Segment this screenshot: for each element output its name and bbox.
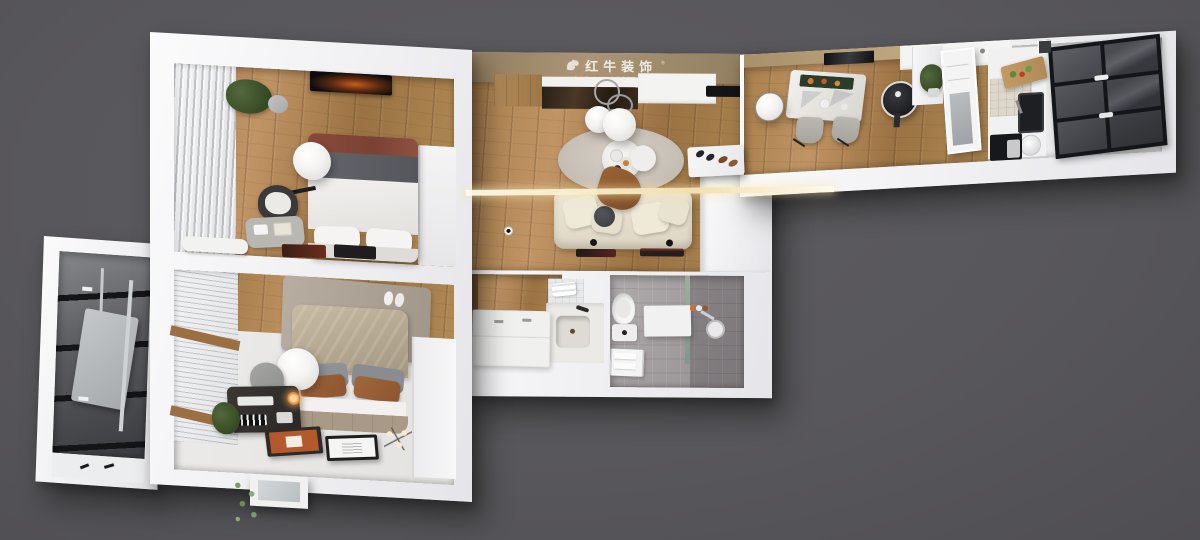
towel-rack — [610, 348, 645, 376]
toilet — [612, 293, 638, 343]
tall-shelf-unit — [940, 47, 981, 155]
outdoor-plant-sprigs — [224, 474, 270, 529]
cabinet-seam — [472, 335, 550, 338]
shoe — [695, 149, 706, 159]
coffee-table-small — [630, 145, 656, 171]
bull-logo-icon — [565, 59, 581, 72]
stock-pot — [1020, 134, 1041, 156]
floor-frame-orange — [265, 426, 324, 457]
entry-shoe-ledge — [687, 145, 744, 178]
center-wing: 红牛装饰 ® HONG NIU DECORATION — [458, 52, 772, 398]
balcony-floor — [52, 453, 145, 483]
left-wing — [150, 32, 472, 502]
book — [273, 222, 292, 236]
bath-partition-shelf — [644, 305, 692, 336]
glass-pane — [1057, 117, 1107, 155]
sofa-knob — [666, 239, 673, 246]
glass-pane — [1104, 38, 1158, 76]
towel — [614, 353, 636, 360]
sputnik-light-fixture — [384, 427, 412, 451]
bedside-mat — [282, 244, 326, 258]
glass-pane — [1109, 110, 1163, 148]
pendant-lamp — [603, 108, 636, 141]
closet-column — [412, 337, 456, 479]
dining-table — [785, 70, 866, 123]
desk-panel — [276, 412, 293, 423]
sink-drain — [570, 329, 575, 334]
white-cabinet — [638, 73, 716, 104]
registered-mark: ® — [661, 60, 665, 66]
faucet — [576, 305, 590, 313]
flush-button — [622, 330, 627, 335]
towel-rolls — [551, 282, 576, 297]
shoe — [727, 158, 739, 168]
shelf-line — [947, 64, 969, 68]
glass-pane — [1107, 74, 1161, 112]
sofa — [554, 189, 692, 250]
food-plate — [620, 157, 632, 169]
laundry-vanity — [546, 303, 604, 363]
toiletry-bottles — [690, 304, 708, 313]
cup — [895, 91, 901, 97]
bedside-mat — [334, 244, 376, 259]
dish — [840, 103, 848, 110]
wood-cabinet — [494, 74, 542, 106]
dish — [818, 98, 830, 110]
shoe — [717, 155, 729, 165]
plant-pot — [268, 95, 288, 114]
glass-pane — [1055, 81, 1105, 119]
counter-deco — [980, 48, 985, 53]
shower-head — [706, 320, 725, 339]
floor-frame-white — [325, 434, 379, 461]
wardrobe — [418, 145, 456, 267]
plant-pot — [928, 88, 939, 98]
floor-mat — [576, 249, 616, 257]
kitchen-counter — [988, 46, 1046, 159]
shelf-marble-panel — [949, 92, 973, 146]
frame-card — [285, 436, 302, 448]
shoe — [705, 152, 716, 162]
frame-print — [342, 442, 363, 454]
floorplan-3d-render: 红牛装饰 ® HONG NIU DECORATION — [0, 0, 1200, 540]
cabinet-handle — [522, 319, 531, 322]
shelf-line — [947, 78, 969, 82]
balcony-clip — [78, 396, 88, 401]
table-runner — [799, 74, 854, 90]
small-device — [1007, 139, 1020, 158]
desk-tray — [237, 396, 274, 406]
table-stem — [894, 113, 901, 127]
laundry-cabinet-platform — [472, 309, 551, 367]
sofa-knob — [590, 239, 597, 246]
cooktop-black — [706, 86, 744, 97]
right-wing — [740, 31, 1176, 197]
downlight — [504, 226, 513, 235]
cabinet-handle — [494, 320, 503, 323]
towel — [614, 363, 636, 370]
floor-mat — [640, 248, 684, 256]
kitchen-doorway-slit — [1038, 40, 1051, 54]
balcony-clip — [82, 287, 92, 292]
dark-round-pillow — [594, 206, 615, 227]
phone — [253, 224, 268, 235]
desk-lamp-bulb — [287, 392, 301, 405]
toilet-seat — [616, 299, 631, 318]
armchair-cushion — [265, 191, 291, 214]
left-balcony — [35, 236, 166, 490]
kitchen-glass-door-wall — [1048, 34, 1168, 159]
